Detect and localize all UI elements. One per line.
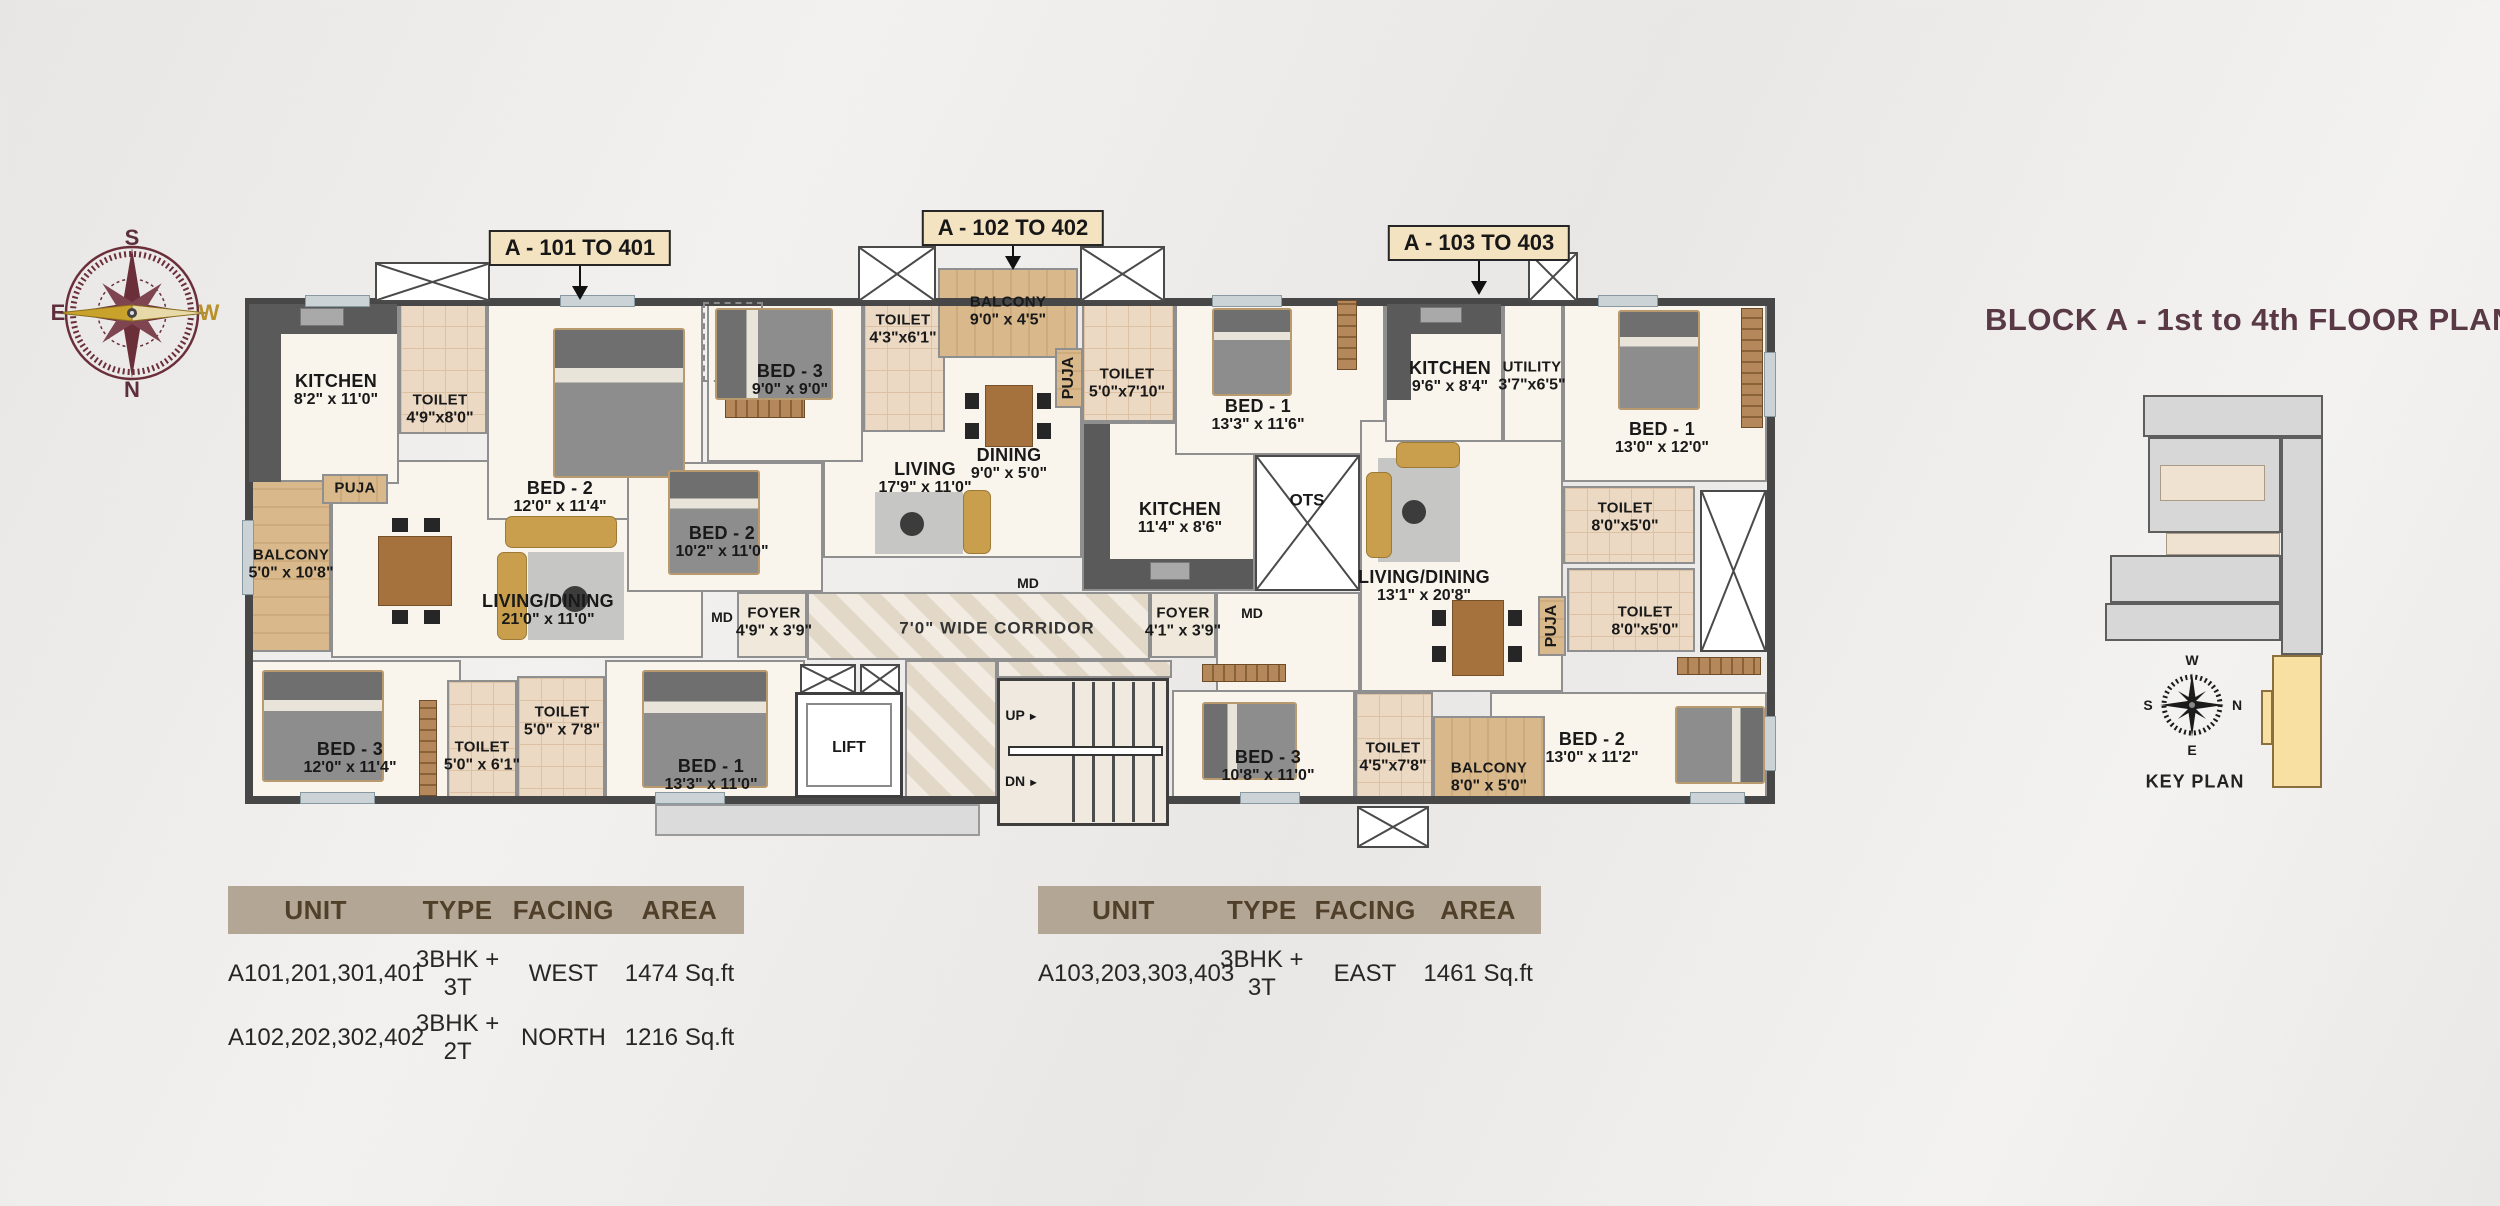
wardrobe-shaft xyxy=(1700,490,1767,652)
wardrobe xyxy=(1202,664,1286,682)
bed xyxy=(553,328,685,478)
room-label-a102-balcony: BALCONY9'0" x 4'5" xyxy=(970,295,1046,330)
wardrobe xyxy=(1337,300,1357,370)
table-row: A101,201,301,401 3BHK + 3T WEST 1474 Sq.… xyxy=(228,946,744,998)
kitchen-sink xyxy=(1150,562,1190,580)
table-row: A103,203,303,403 3BHK + 3T EAST 1461 Sq.… xyxy=(1038,946,1541,998)
wardrobe xyxy=(1677,657,1761,675)
down-arrow-icon: ► xyxy=(1028,777,1039,789)
kitchen-sink xyxy=(300,308,344,326)
room-label-a101-toilet-a: TOILET4'9"x8'0" xyxy=(406,393,473,428)
duct-shaft xyxy=(375,262,490,302)
keyplan-block xyxy=(2281,437,2323,655)
main-door-label: MD xyxy=(711,610,733,626)
stairs-dn-label: DN► xyxy=(1005,774,1039,790)
window xyxy=(1764,716,1776,771)
dining-chair xyxy=(1508,610,1522,626)
room-label-a103-living: LIVING/DINING13'1" x 20'8" xyxy=(1358,567,1490,605)
callout-arrowhead-a102 xyxy=(1005,256,1021,270)
main-compass xyxy=(47,228,217,398)
wardrobe xyxy=(419,700,437,796)
room-label-a101-bed3: BED - 312'0" x 11'4" xyxy=(303,739,396,777)
unit-callout-a102: A - 102 TO 402 xyxy=(922,210,1104,246)
dining-chair xyxy=(1037,423,1051,439)
dining-table xyxy=(378,536,452,606)
wardrobe xyxy=(1741,308,1763,428)
sofa xyxy=(963,490,991,554)
room-label-a102-dining: DINING9'0" x 5'0" xyxy=(971,445,1047,483)
kitchen-sink xyxy=(1420,307,1462,323)
room-label-a101-puja: PUJA xyxy=(334,481,375,498)
bed xyxy=(1618,310,1700,410)
room-label-a101-toilet-c: TOILET5'0" x 7'8" xyxy=(524,705,600,740)
lift-lobby-shaft xyxy=(860,664,900,694)
x-brace-icon xyxy=(802,666,854,692)
col-header-type: TYPE xyxy=(403,895,511,926)
lift-lobby-shaft xyxy=(800,664,856,694)
dining-chair xyxy=(424,518,440,532)
dining-chair xyxy=(1432,610,1446,626)
keyplan-caption: KEY PLAN xyxy=(2146,772,2245,793)
dining-chair xyxy=(1432,646,1446,662)
x-brace-icon xyxy=(1359,808,1427,846)
x-brace-icon xyxy=(860,248,934,300)
duct-shaft xyxy=(1357,806,1429,848)
sofa xyxy=(1396,442,1460,468)
lift-label: LIFT xyxy=(832,739,866,757)
col-header-facing: FACING xyxy=(1315,895,1416,926)
bed xyxy=(1212,308,1292,396)
cell-type: 3BHK + 3T xyxy=(403,946,511,1002)
cell-area: 1474 Sq.ft xyxy=(615,960,744,988)
corridor-lift-lobby xyxy=(905,660,997,798)
room-a102-toilet-b xyxy=(1082,302,1175,422)
room-label-a103-bed3: BED - 310'8" x 11'0" xyxy=(1221,747,1314,785)
coffee-table xyxy=(900,512,924,536)
coffee-table xyxy=(1402,500,1426,524)
col-header-unit: UNIT xyxy=(228,895,403,926)
callout-arrowhead-a103 xyxy=(1471,281,1487,295)
dining-chair xyxy=(1508,646,1522,662)
table-header-row: UNIT TYPE FACING AREA xyxy=(1038,886,1541,934)
dining-chair xyxy=(424,610,440,624)
room-label-a102-bed1: BED - 113'3" x 11'6" xyxy=(1211,396,1304,434)
compass-dir-right: W xyxy=(199,300,220,326)
compass-dir-top: S xyxy=(125,225,140,251)
duct-shaft xyxy=(858,246,936,302)
col-header-facing: FACING xyxy=(512,895,615,926)
room-label-a103-balcony: BALCONY8'0" x 5'0" xyxy=(1451,761,1527,796)
room-label-a102-living: LIVING17'9" x 11'0" xyxy=(878,459,971,497)
x-brace-icon xyxy=(862,666,898,692)
window xyxy=(1690,792,1745,804)
room-label-a102-puja: PUJA xyxy=(1060,357,1078,400)
sofa xyxy=(1366,472,1392,558)
room-label-a102-toilet-a: TOILET4'3"x6'1" xyxy=(869,313,936,348)
keyplan-highlight-block-a xyxy=(2272,655,2322,788)
main-door-label: MD xyxy=(1017,576,1039,592)
keyplan-highlight-notch xyxy=(2261,690,2273,745)
callout-arrow-a101 xyxy=(579,266,581,288)
keyplan-dir-right: N xyxy=(2232,697,2242,713)
kitchen-counter xyxy=(249,304,281,482)
room-label-a103-toilet-a: TOILET8'0"x5'0" xyxy=(1591,501,1658,536)
window xyxy=(1212,295,1282,307)
window xyxy=(1598,295,1658,307)
up-arrow-icon: ► xyxy=(1028,711,1039,723)
room-label-a103-utility: UTILITY3'7"x6'5" xyxy=(1498,360,1565,395)
floor-plan-page: { "page": { "title": "BLOCK A - 1st to 4… xyxy=(0,0,2500,1206)
bed xyxy=(1675,706,1765,784)
table-row: A102,202,302,402 3BHK + 2T NORTH 1216 Sq… xyxy=(228,1010,744,1062)
room-label-a103-toilet-b: TOILET8'0"x5'0" xyxy=(1611,605,1678,640)
keyplan-block xyxy=(2110,555,2281,603)
dining-table xyxy=(1452,600,1504,676)
room-label-a101-kitchen: KITCHEN8'2" x 11'0" xyxy=(294,371,378,409)
cell-unit: A103,203,303,403 xyxy=(1038,960,1209,988)
room-label-a101-foyer: FOYER4'9" x 3'9" xyxy=(736,606,812,641)
dining-chair xyxy=(392,518,408,532)
stairs-up-label: UP► xyxy=(1005,708,1038,724)
corridor-stair-landing xyxy=(997,660,1172,678)
col-header-unit: UNIT xyxy=(1038,895,1209,926)
callout-arrow-a103 xyxy=(1478,261,1480,283)
room-label-a101-balcony: BALCONY5'0" x 10'8" xyxy=(248,548,333,583)
room-label-a102-bed2: BED - 210'2" x 11'0" xyxy=(675,523,768,561)
unit-callout-a101: A - 101 TO 401 xyxy=(489,230,671,266)
room-label-a102-kitchen: KITCHEN11'4" x 8'6" xyxy=(1138,499,1222,537)
keyplan-compass-rose-icon xyxy=(2152,665,2232,745)
window xyxy=(305,295,370,307)
compass-rose-icon xyxy=(47,228,217,398)
room-label-a103-kitchen: KITCHEN9'6" x 8'4" xyxy=(1409,358,1491,396)
corridor-label: 7'0" WIDE CORRIDOR xyxy=(899,618,1094,637)
window xyxy=(1764,352,1776,417)
cell-type: 3BHK + 2T xyxy=(403,1010,511,1066)
cell-area: 1461 Sq.ft xyxy=(1415,960,1541,988)
page-title: BLOCK A - 1st to 4th FLOOR PLAN xyxy=(1985,302,2500,338)
cell-area: 1216 Sq.ft xyxy=(615,1024,744,1052)
room-label-a103-toilet-c: TOILET4'5"x7'8" xyxy=(1359,741,1426,776)
dining-chair xyxy=(965,393,979,409)
window xyxy=(1240,792,1300,804)
entrance-apron xyxy=(655,804,980,836)
room-label-a101-bed2: BED - 212'0" x 11'4" xyxy=(513,478,606,516)
room-label-a102-toilet-b: TOILET5'0"x7'10" xyxy=(1089,367,1165,402)
area-table-left: UNIT TYPE FACING AREA A101,201,301,401 3… xyxy=(228,886,744,1062)
dining-chair xyxy=(965,423,979,439)
cell-type: 3BHK + 3T xyxy=(1209,946,1315,1002)
cell-facing: WEST xyxy=(512,960,615,988)
keyplan-corridor xyxy=(2166,533,2280,555)
dining-chair xyxy=(392,610,408,624)
cell-facing: EAST xyxy=(1315,960,1416,988)
sofa xyxy=(505,516,617,548)
room-label-a103-bed2: BED - 213'0" x 11'2" xyxy=(1545,729,1638,767)
ots-shaft xyxy=(1255,455,1360,591)
keyplan-block xyxy=(2105,603,2281,641)
x-brace-icon xyxy=(1082,248,1163,300)
keyplan-compass xyxy=(2152,665,2232,745)
keyplan-dir-bottom: E xyxy=(2187,742,2196,758)
stair-rail xyxy=(1008,746,1163,756)
room-label-a102-bed3: BED - 39'0" x 9'0" xyxy=(752,361,828,399)
col-header-type: TYPE xyxy=(1209,895,1315,926)
ots-label: OTS xyxy=(1290,490,1325,509)
wardrobe xyxy=(725,398,805,418)
x-brace-icon xyxy=(377,264,488,300)
keyplan-block xyxy=(2143,395,2323,437)
kitchen-counter xyxy=(1084,424,1110,589)
keyplan-dir-top: W xyxy=(2185,652,2198,668)
duct-shaft xyxy=(1080,246,1165,302)
room-label-a101-bed1: BED - 113'3" x 11'0" xyxy=(664,756,757,794)
col-header-area: AREA xyxy=(615,895,744,926)
keyplan-cream-patch xyxy=(2160,465,2265,501)
area-table-right: UNIT TYPE FACING AREA A103,203,303,403 3… xyxy=(1038,886,1541,998)
col-header-area: AREA xyxy=(1415,895,1541,926)
compass-dir-left: E xyxy=(51,300,66,326)
room-label-a103-puja: PUJA xyxy=(1543,605,1561,648)
x-brace-icon xyxy=(1257,457,1358,589)
cell-facing: NORTH xyxy=(512,1024,615,1052)
kitchen-counter xyxy=(1387,304,1411,400)
callout-arrowhead-a101 xyxy=(572,286,588,300)
room-label-a103-bed1: BED - 113'0" x 12'0" xyxy=(1615,419,1709,457)
room-label-a101-living: LIVING/DINING21'0" x 11'0" xyxy=(482,591,614,629)
compass-dir-bottom: N xyxy=(124,377,140,403)
main-door-label: MD xyxy=(1241,606,1263,622)
cell-unit: A102,202,302,402 xyxy=(228,1024,403,1052)
table-header-row: UNIT TYPE FACING AREA xyxy=(228,886,744,934)
room-label-a101-toilet-b: TOILET5'0" x 6'1" xyxy=(444,740,520,775)
unit-callout-a103: A - 103 TO 403 xyxy=(1388,225,1570,261)
cell-unit: A101,201,301,401 xyxy=(228,960,403,988)
keyplan-dir-left: S xyxy=(2143,697,2152,713)
dining-chair xyxy=(1037,393,1051,409)
x-brace-icon xyxy=(1702,492,1765,650)
dining-table xyxy=(985,385,1033,447)
window xyxy=(300,792,375,804)
room-label-a103-foyer: FOYER4'1" x 3'9" xyxy=(1145,606,1221,641)
